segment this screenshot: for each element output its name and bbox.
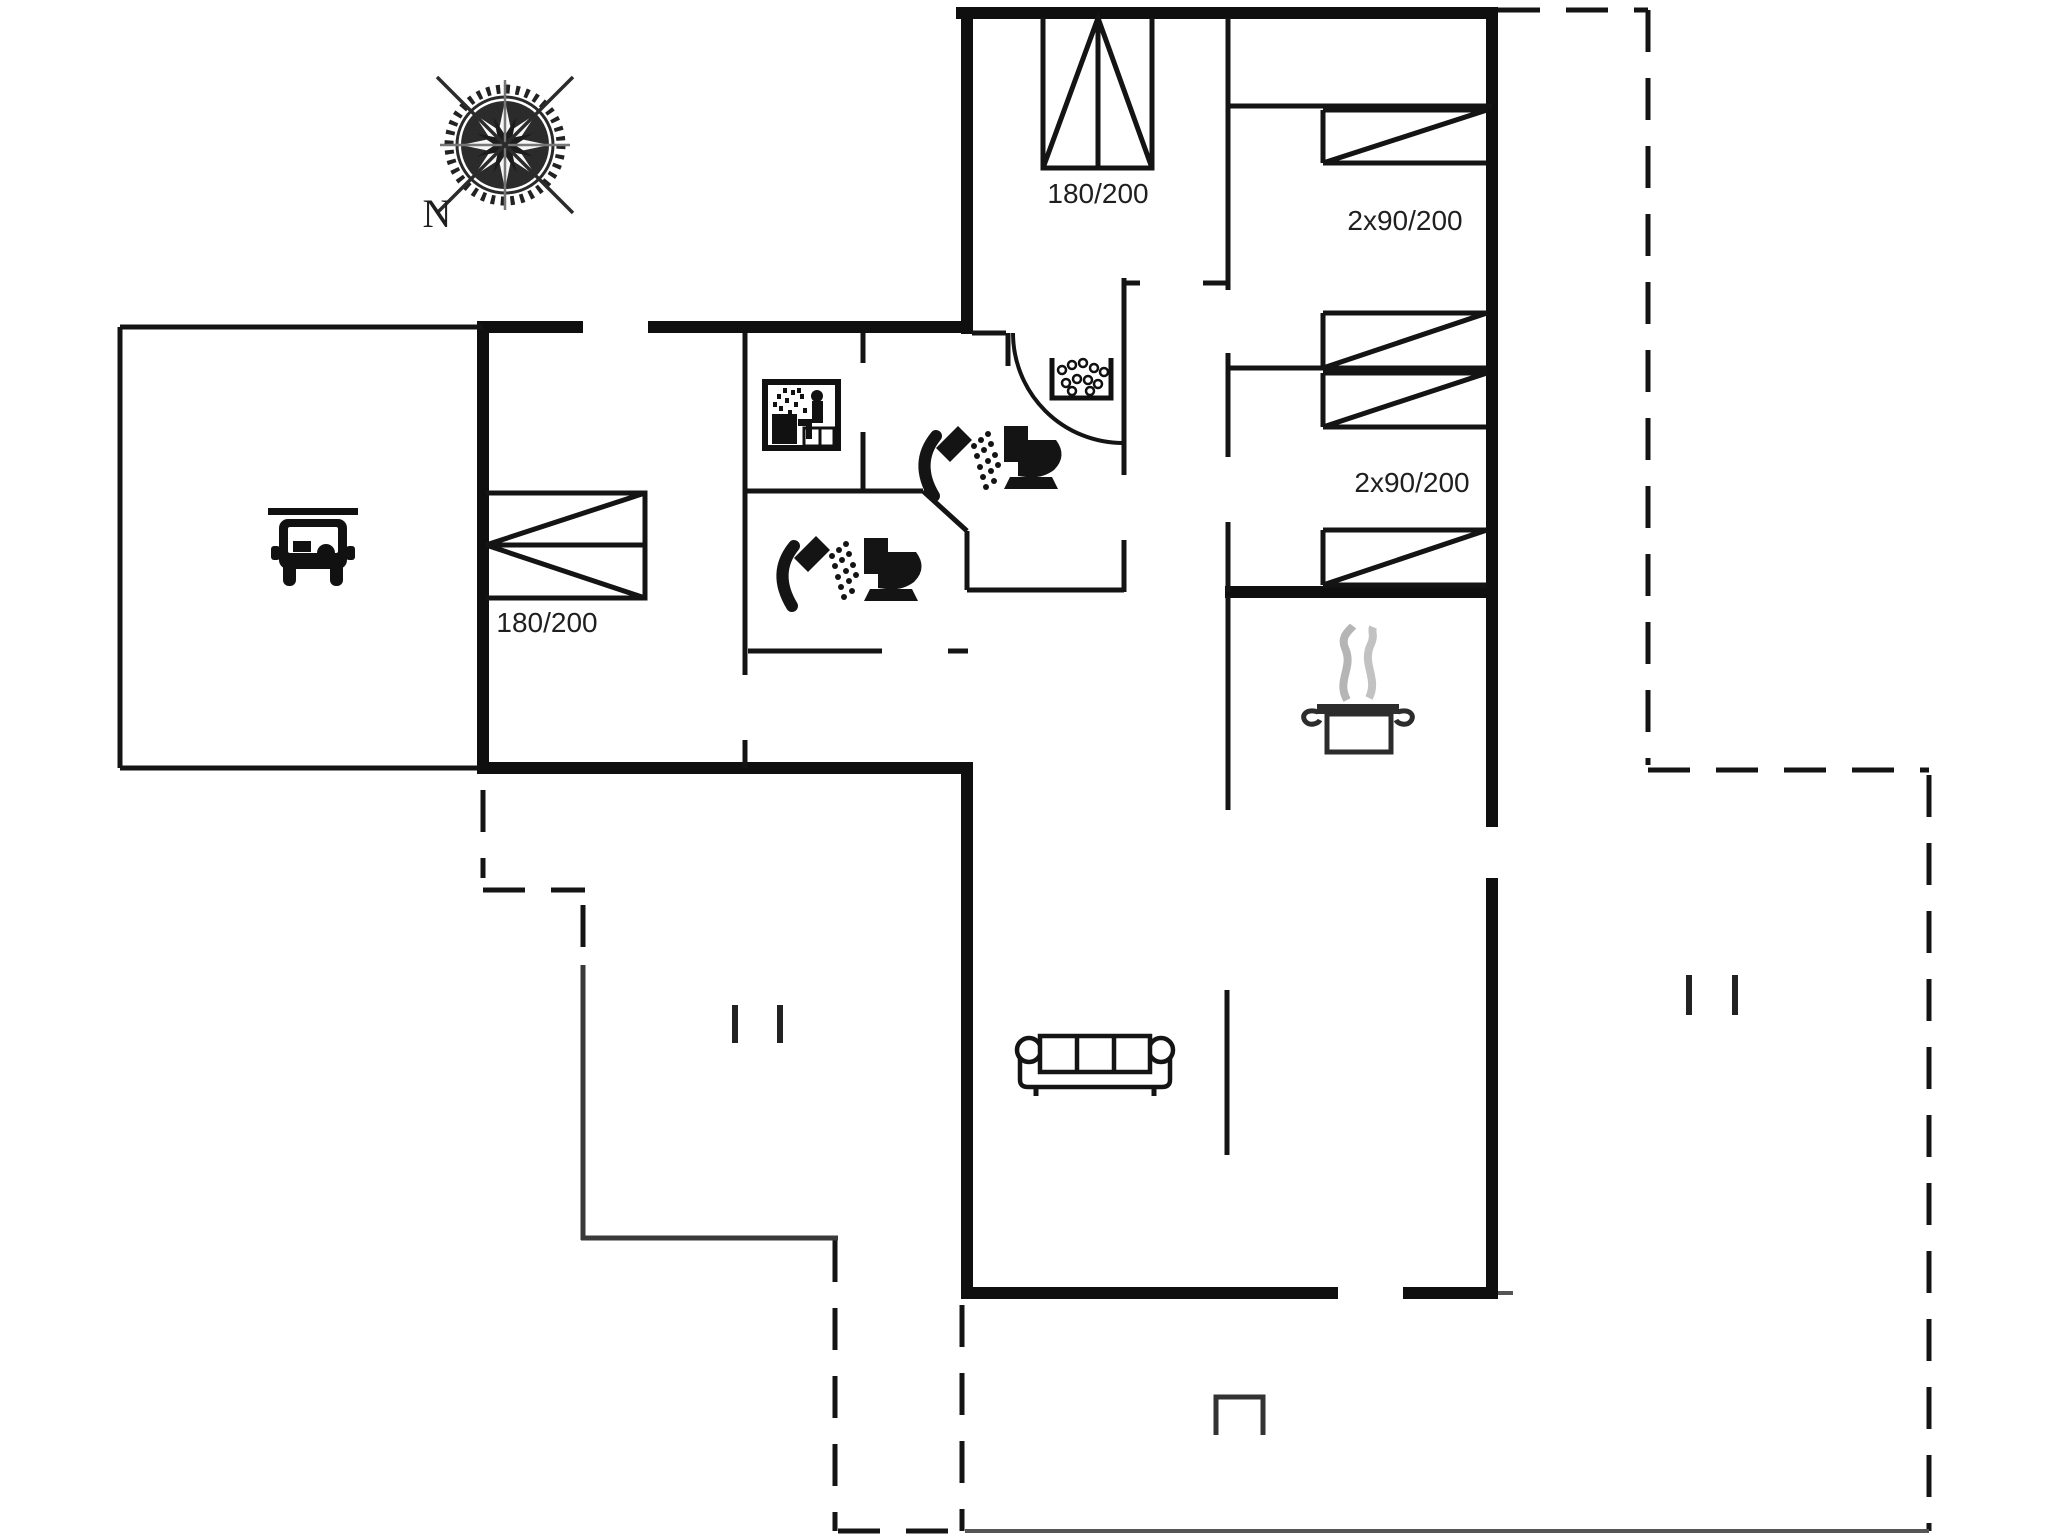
car-icon xyxy=(268,508,358,586)
terrace-step-ticks xyxy=(735,975,1735,1043)
compass-north-label: N xyxy=(423,191,452,236)
shower-icon-upper xyxy=(924,426,1001,496)
right-terrace-ticks xyxy=(1689,975,1735,1015)
walls-thin xyxy=(120,18,1513,1293)
shower-icon-lower xyxy=(782,536,859,606)
single-beds-e xyxy=(1323,313,1487,585)
double-bed-top xyxy=(1043,18,1152,168)
sofa-icon xyxy=(1017,1036,1173,1096)
terrace-solid-lines xyxy=(581,965,1929,1531)
floor-plan: 180/200 2x90/200 2x90/200 180/200 N xyxy=(0,0,2048,1536)
cooking-pot-icon xyxy=(1304,626,1413,752)
toilet-icon-upper xyxy=(1004,426,1062,489)
whirlpool-icon xyxy=(1052,358,1111,398)
left-terrace-ticks xyxy=(735,1005,780,1043)
sauna-icon xyxy=(765,382,838,448)
double-bed-left xyxy=(486,493,645,598)
toilet-icon-lower xyxy=(864,538,922,601)
single-bed-ne xyxy=(1323,110,1487,163)
bed-label-top: 180/200 xyxy=(1047,178,1148,209)
bed-label-ne: 2x90/200 xyxy=(1347,205,1462,236)
bed-label-e: 2x90/200 xyxy=(1354,467,1469,498)
bed-label-left: 180/200 xyxy=(496,607,597,638)
step-u-shape xyxy=(1216,1397,1263,1435)
compass-rose-icon: N xyxy=(423,77,573,236)
shower-spray-dots xyxy=(971,431,1001,490)
floor-plan-drawing: 180/200 2x90/200 2x90/200 180/200 N xyxy=(0,0,2048,1536)
